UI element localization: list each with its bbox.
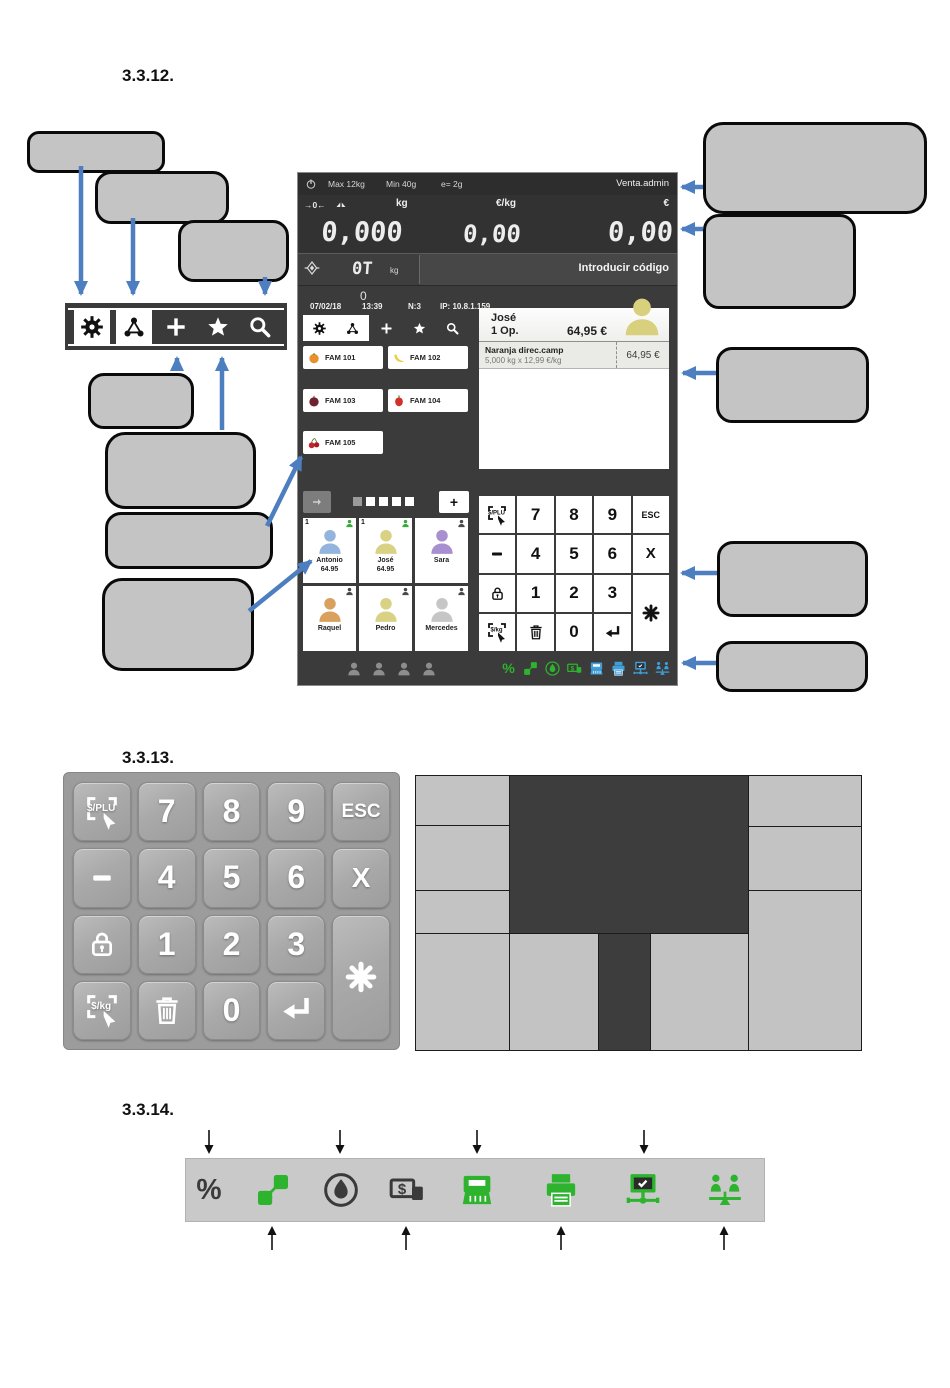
monitor-network-icon[interactable] (623, 1170, 663, 1210)
vendor-silhouette-icon (346, 661, 362, 677)
tare-icon (304, 260, 320, 276)
vendor-silhouette-icon (371, 661, 387, 677)
svg-text:$/kg: $/kg (91, 1002, 111, 1013)
svg-text:$: $ (571, 665, 575, 672)
tare-unit: kg (390, 266, 398, 275)
max-capacity: Max 12kg (328, 179, 365, 189)
vendor-card-raquel[interactable]: Raquel (303, 586, 356, 651)
key-five[interactable]: 5 (203, 848, 261, 907)
key-price-plu[interactable]: $/PLU (73, 782, 131, 841)
minus-icon (489, 546, 505, 562)
pager-dot[interactable] (379, 497, 388, 506)
fruit-plum (307, 394, 321, 408)
key-one[interactable]: 1 (138, 915, 196, 974)
key-eight[interactable]: 8 (203, 782, 261, 841)
zero-indicator-icon: →0← (304, 200, 326, 210)
status-icons: %$ (500, 660, 671, 677)
key-delete[interactable] (517, 614, 553, 651)
key-minus[interactable] (73, 848, 131, 907)
toolbar-star-icon[interactable] (403, 315, 436, 341)
verification-interval: e= 2g (441, 179, 463, 189)
weight-display: 0,000 (303, 217, 421, 248)
svg-text:%: % (502, 661, 515, 677)
vendor-avatar (427, 595, 457, 625)
toolbar-star-icon[interactable] (200, 309, 236, 345)
vendor-name: Sara (434, 557, 449, 566)
key-asterisk[interactable] (332, 915, 390, 1041)
section-heading-3-3-12: 3.3.12. (122, 66, 174, 86)
key-four[interactable]: 4 (517, 535, 553, 572)
gear-icon (312, 321, 327, 336)
add-icon (163, 314, 189, 340)
lock-icon (86, 928, 118, 960)
printer-icon[interactable] (610, 660, 627, 677)
section-heading-3-3-14: 3.3.14. (122, 1100, 174, 1120)
ticket-item-title: Naranja direc.camp (485, 345, 563, 355)
screen-toolbar (303, 315, 469, 341)
operator-ops: 1 Op. (491, 325, 519, 337)
status-bar: %$ (298, 653, 677, 685)
pager-dot[interactable] (366, 497, 375, 506)
toolbar-search-icon[interactable] (242, 309, 278, 345)
toolbar-network-icon[interactable] (336, 315, 369, 341)
vendor-card-pedro[interactable]: Pedro (359, 586, 412, 651)
legend-cell (415, 890, 510, 934)
vendor-grid: 1Antonio64.951José64.95SaraRaquelPedroMe… (303, 518, 468, 651)
vendor-status-icon (401, 519, 410, 528)
vendor-amount: 64.95 (377, 566, 395, 573)
fruit-banana (392, 351, 406, 365)
toolbar-gear-icon[interactable] (303, 315, 336, 341)
gear-icon (79, 314, 105, 340)
toolbar-gear-icon[interactable] (74, 309, 110, 345)
key-nine[interactable]: 9 (594, 496, 630, 533)
key-multiply[interactable]: X (633, 535, 669, 572)
operator-panel[interactable]: José 1 Op. 64,95 € Naranja direc.camp 5,… (479, 308, 669, 469)
family-button[interactable]: FAM 104 (388, 389, 468, 412)
percent-icon[interactable]: % (500, 660, 517, 677)
session-time: 13:39 (362, 302, 382, 311)
key-esc[interactable]: ESC (633, 496, 669, 533)
scale-screenshot: Max 12kg Min 40g e= 2g Venta.admin →0← k… (297, 172, 678, 686)
key-lock[interactable] (73, 915, 131, 974)
network-icon (345, 321, 360, 336)
key-esc[interactable]: ESC (332, 782, 390, 841)
ticket-item-detail: 5,000 kg x 12,99 €/kg (485, 356, 562, 365)
money-icon[interactable]: $ (566, 660, 583, 677)
vendor-avatar (315, 595, 345, 625)
toolbar-add-icon[interactable] (369, 315, 402, 341)
key-zero[interactable]: 0 (203, 981, 261, 1040)
asterisk-icon (641, 603, 661, 623)
key-minus[interactable] (479, 535, 515, 572)
svg-text:%: % (196, 1174, 221, 1206)
key-two[interactable]: 2 (556, 575, 592, 612)
legend-cell (748, 826, 862, 891)
family-label: FAM 101 (325, 353, 355, 362)
legend-cell (415, 775, 510, 826)
total-display: 0,00 (560, 217, 674, 248)
svg-text:$/PLU: $/PLU (488, 510, 505, 516)
key-delete[interactable] (138, 981, 196, 1040)
vendor-badge: 1 (361, 519, 365, 526)
pager-dot[interactable] (405, 497, 414, 506)
printer-icon[interactable] (541, 1170, 581, 1210)
key-lock[interactable] (479, 575, 515, 612)
vendor-name: Pedro (376, 625, 396, 634)
legend-cell (415, 825, 510, 891)
svg-text:$: $ (398, 1181, 407, 1198)
ticket-line[interactable]: Naranja direc.camp 5,000 kg x 12,99 €/kg… (479, 341, 669, 369)
code-counter: 0 (360, 289, 367, 303)
vendor-status-icon (345, 519, 354, 528)
family-label: FAM 103 (325, 396, 355, 405)
touch-kg-icon: $/kg (82, 990, 122, 1030)
manual-page: 3.3.12. Max 12kg Min 40g e= 2g Venta.adm… (0, 0, 950, 1388)
key-six[interactable]: 6 (267, 848, 325, 907)
legend-dark-strip (598, 933, 651, 1051)
people-network-icon[interactable] (654, 660, 671, 677)
family-label: FAM 105 (325, 438, 355, 447)
family-label: FAM 104 (410, 396, 440, 405)
toolbar-network-icon[interactable] (116, 309, 152, 345)
vendor-avatar (315, 527, 345, 557)
touch-plu-icon: $/PLU (485, 503, 509, 527)
operator-total: 64,95 € (567, 324, 607, 338)
touch-kg-icon: $/kg (485, 620, 509, 644)
vendor-status-icon (345, 587, 354, 596)
pager-dot[interactable] (392, 497, 401, 506)
logged-user: Venta.admin (616, 178, 669, 189)
enter-icon (278, 992, 314, 1028)
star-icon (412, 321, 427, 336)
key-seven[interactable]: 7 (138, 782, 196, 841)
pager-add-button[interactable]: + (439, 491, 469, 513)
legend-dark-region (509, 775, 749, 934)
link-icon[interactable] (253, 1170, 293, 1210)
callout-user-label (703, 122, 927, 214)
vendor-card-josé[interactable]: 1José64.95 (359, 518, 412, 583)
fruit-orange (307, 351, 321, 365)
legend-cell (509, 933, 599, 1051)
callout-display-label (703, 214, 856, 309)
min-capacity: Min 40g (386, 179, 416, 189)
section-heading-3-3-13: 3.3.13. (122, 748, 174, 768)
vendor-amount: 64.95 (321, 566, 339, 573)
operator-avatar (619, 294, 665, 340)
vendor-card-antonio[interactable]: 1Antonio64.95 (303, 518, 356, 583)
svg-text:$/kg: $/kg (491, 628, 503, 634)
vendor-badge: 1 (305, 519, 309, 526)
fruit-cherries (307, 436, 321, 450)
droplet-icon[interactable] (321, 1170, 361, 1210)
legend-cell (748, 775, 862, 827)
vendor-card-sara[interactable]: Sara (415, 518, 468, 583)
enlarged-toolbar (65, 303, 287, 350)
operator-name: José (491, 312, 516, 324)
vendor-silhouette-icon (396, 661, 412, 677)
legend-cell (748, 890, 862, 1051)
monitor-network-icon[interactable] (632, 660, 649, 677)
percent-icon[interactable]: % (192, 1173, 226, 1207)
keypad-legend-diagram (415, 775, 862, 1051)
arrow-right-icon (311, 496, 323, 508)
weight-unit: kg (396, 198, 408, 209)
key-nine[interactable]: 9 (267, 782, 325, 841)
touch-plu-icon: $/PLU (82, 792, 122, 832)
unit-price-unit: €/kg (496, 198, 516, 209)
ticket-item-amount: 64,95 € (616, 342, 669, 368)
trash-icon (150, 993, 184, 1027)
pager-dot[interactable] (353, 497, 362, 506)
star-icon (205, 314, 231, 340)
search-icon (247, 314, 273, 340)
vendor-status-icon (457, 587, 466, 596)
lock-icon (489, 585, 506, 602)
key-two[interactable]: 2 (203, 915, 261, 974)
key-one[interactable]: 1 (517, 575, 553, 612)
callout-family-key-label (105, 512, 273, 569)
power-icon (305, 178, 317, 190)
callout-statusbar-label (716, 641, 868, 692)
family-button[interactable]: FAM 102 (388, 346, 468, 369)
family-button[interactable]: FAM 103 (303, 389, 383, 412)
family-label: FAM 102 (410, 353, 440, 362)
unit-price-display: 0,00 (445, 220, 539, 248)
key-enter[interactable] (267, 981, 325, 1040)
session-terminal: N:3 (408, 302, 421, 311)
vendor-name: Raquel (318, 625, 341, 634)
money-icon[interactable]: $ (387, 1170, 427, 1210)
vendor-pager: + (303, 491, 469, 513)
add-icon (379, 321, 394, 336)
toolbar-add-icon[interactable] (158, 309, 194, 345)
key-price-kg[interactable]: $/kg (73, 981, 131, 1040)
screen-keypad: $/PLU789ESC456X123$/kg0 (479, 496, 669, 651)
vendor-silhouette-icon (421, 661, 437, 677)
callout-search-label (178, 220, 289, 282)
svg-text:$/PLU: $/PLU (87, 803, 115, 814)
callout-sales-mode-label (95, 171, 229, 224)
asterisk-icon (343, 959, 379, 995)
vendor-name: Antonio (316, 557, 342, 566)
trash-icon (527, 623, 545, 641)
code-prompt: Introducir código (579, 262, 669, 274)
key-asterisk[interactable] (633, 575, 669, 652)
legend-cell (415, 933, 510, 1051)
tare-display: 0T (351, 259, 373, 279)
key-enter[interactable] (594, 614, 630, 651)
key-seven[interactable]: 7 (517, 496, 553, 533)
search-icon (445, 321, 460, 336)
minus-icon (88, 864, 116, 892)
status-silhouettes (346, 661, 437, 677)
register-icon[interactable] (588, 660, 605, 677)
vendor-status-icon (401, 587, 410, 596)
fruit-pepper (392, 394, 406, 408)
callout-add-label (88, 373, 194, 429)
vendor-avatar (371, 527, 401, 557)
vendor-status-icon (457, 519, 466, 528)
key-three[interactable]: 3 (267, 915, 325, 974)
family-button[interactable]: FAM 101 (303, 346, 383, 369)
register-icon[interactable] (457, 1170, 497, 1210)
pager-dots[interactable] (353, 497, 414, 506)
enter-icon (603, 623, 622, 642)
key-six[interactable]: 6 (594, 535, 630, 572)
callout-favorites-label (105, 432, 256, 509)
tare-divider (419, 255, 420, 284)
callout-keypad-label (717, 541, 868, 617)
status-icon-bar: %$ (185, 1158, 765, 1222)
key-five[interactable]: 5 (556, 535, 592, 572)
key-zero[interactable]: 0 (556, 614, 592, 651)
key-price-plu[interactable]: $/PLU (479, 496, 515, 533)
key-eight[interactable]: 8 (556, 496, 592, 533)
vendor-avatar (371, 595, 401, 625)
toolbar-search-icon[interactable] (436, 315, 469, 341)
keypad-enlarged: $/PLU789ESC456X123$/kg0 (63, 772, 400, 1050)
key-price-kg[interactable]: $/kg (479, 614, 515, 651)
family-button[interactable]: FAM 105 (303, 431, 383, 454)
callout-vendor-key-label (102, 578, 254, 671)
key-three[interactable]: 3 (594, 575, 630, 612)
vendor-avatar (427, 527, 457, 557)
people-network-icon[interactable] (705, 1170, 745, 1210)
vendor-card-mercedes[interactable]: Mercedes (415, 586, 468, 651)
session-date: 07/02/18 (310, 302, 341, 311)
legend-cell (650, 933, 749, 1051)
pager-prev-button[interactable] (303, 491, 331, 513)
link-icon[interactable] (522, 660, 539, 677)
key-multiply[interactable]: X (332, 848, 390, 907)
total-unit: € (663, 198, 669, 209)
callout-ticket-label (716, 347, 869, 423)
key-four[interactable]: 4 (138, 848, 196, 907)
vendor-name: José (378, 557, 394, 566)
droplet-icon[interactable] (544, 660, 561, 677)
stability-icon (334, 198, 348, 210)
callout-settings-label (27, 131, 165, 173)
vendor-name: Mercedes (425, 625, 457, 634)
network-icon (121, 314, 147, 340)
